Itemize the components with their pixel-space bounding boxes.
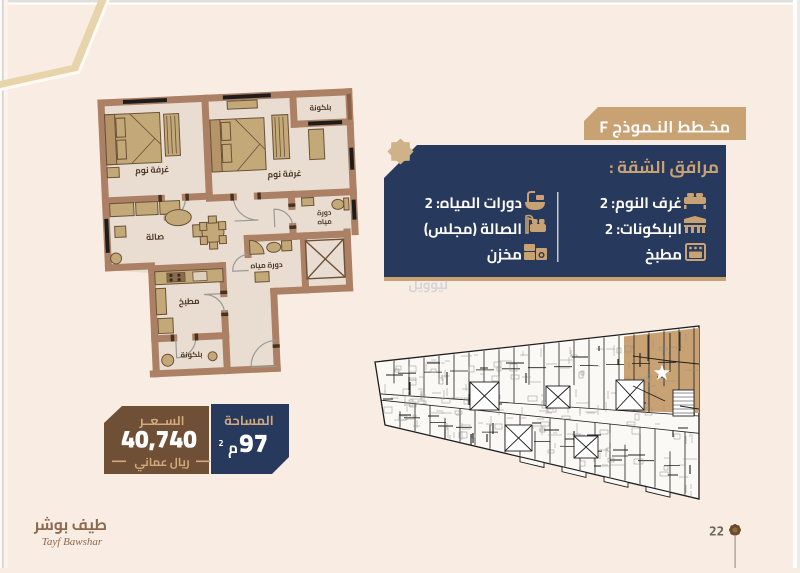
svg-text:Tayf Bawshar: Tayf Bawshar <box>42 536 103 548</box>
